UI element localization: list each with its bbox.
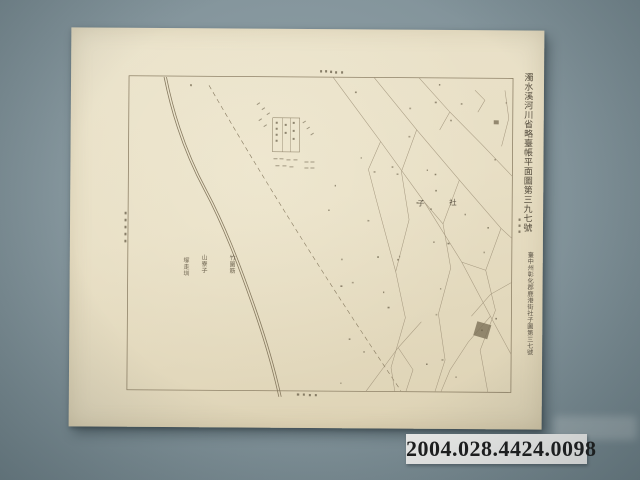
legend-box	[273, 118, 300, 152]
river-levee-line	[162, 77, 284, 397]
dashed-boundary-line	[207, 85, 403, 390]
building-marks	[188, 84, 499, 339]
map-subtitle: 臺中州彰化郡鹿港街社子圖第三七號	[525, 252, 532, 356]
area-name-char: 社	[449, 197, 457, 208]
village-label: 山寮子	[200, 254, 206, 274]
tiny-annotation-marks	[256, 103, 314, 168]
catalog-number-label: 2004.028.4424.0098	[406, 434, 587, 464]
map-sheet-paper: 濁水溪河川省略臺帳平面圖第三九七號 臺中州彰化郡鹿港街社子圖第三七號 竹圍筋 山…	[69, 27, 545, 429]
edge-reference-marks	[123, 69, 521, 398]
photo-canvas: { "background": { "color": "#84959b" }, …	[0, 0, 640, 480]
area-name-char: 子	[417, 198, 425, 209]
parcel-lines	[331, 77, 513, 392]
village-label: 竹圍筋	[228, 254, 234, 274]
village-label: 塚走圳	[182, 257, 188, 277]
parcel-number-specks	[327, 83, 507, 385]
map-border	[127, 76, 513, 393]
map-title: 濁水溪河川省略臺帳平面圖第三九七號	[522, 73, 533, 233]
map-linework	[69, 27, 545, 429]
